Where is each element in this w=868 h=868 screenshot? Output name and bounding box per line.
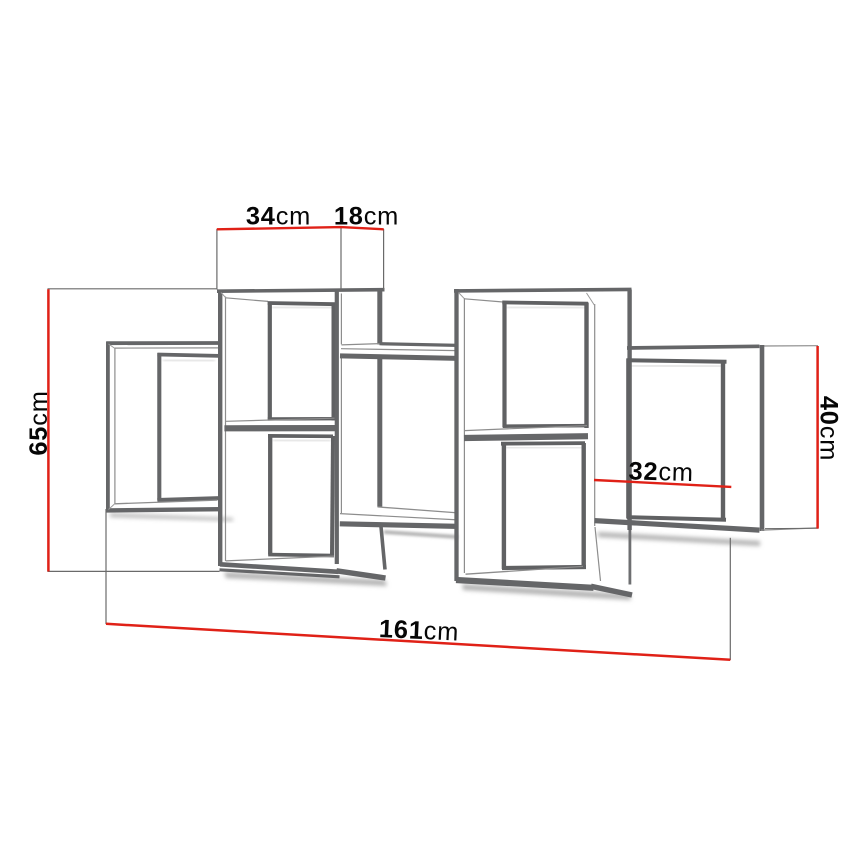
svg-text:32cm: 32cm: [628, 457, 694, 487]
svg-text:40cm: 40cm: [814, 396, 842, 461]
svg-text:18cm: 18cm: [334, 203, 399, 231]
svg-text:34cm: 34cm: [246, 203, 311, 231]
svg-text:65cm: 65cm: [25, 390, 53, 455]
svg-text:161cm: 161cm: [378, 615, 459, 647]
